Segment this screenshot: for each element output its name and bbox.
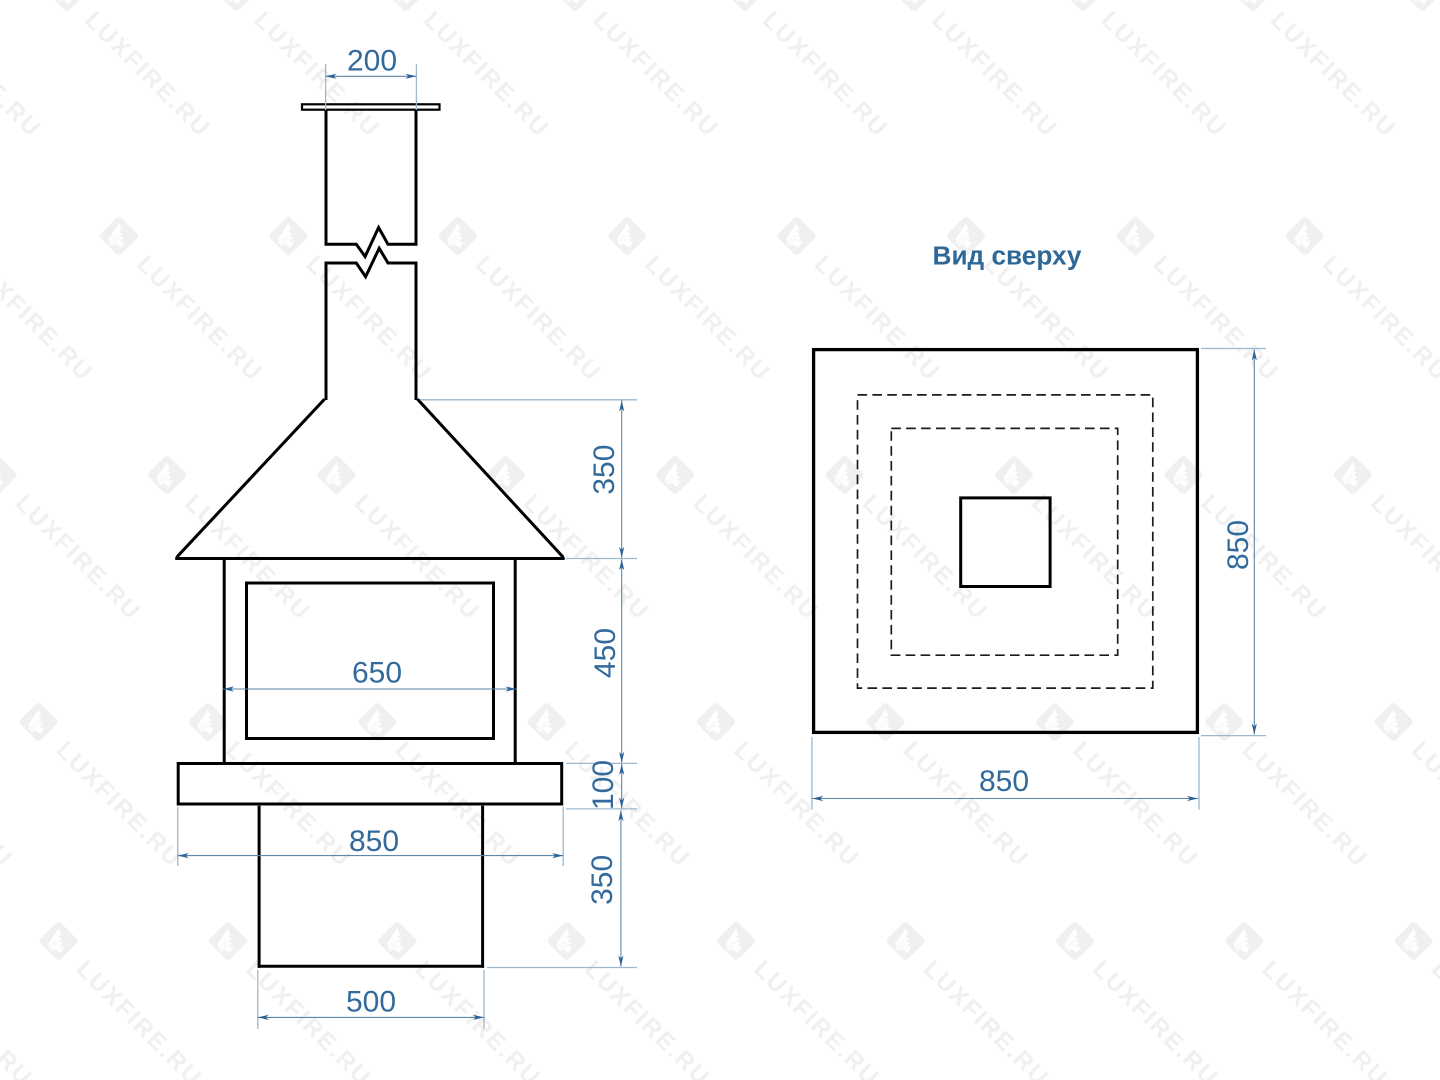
svg-text:350: 350 — [588, 445, 621, 495]
svg-text:100: 100 — [587, 760, 620, 810]
svg-text:200: 200 — [347, 45, 397, 78]
svg-text:850: 850 — [349, 825, 399, 858]
svg-text:350: 350 — [586, 855, 619, 905]
svg-text:450: 450 — [589, 628, 622, 678]
svg-text:650: 650 — [352, 657, 402, 690]
svg-text:850: 850 — [979, 765, 1029, 798]
svg-text:Вид сверху: Вид сверху — [933, 241, 1082, 271]
svg-text:850: 850 — [1222, 520, 1255, 570]
svg-text:500: 500 — [346, 986, 396, 1019]
